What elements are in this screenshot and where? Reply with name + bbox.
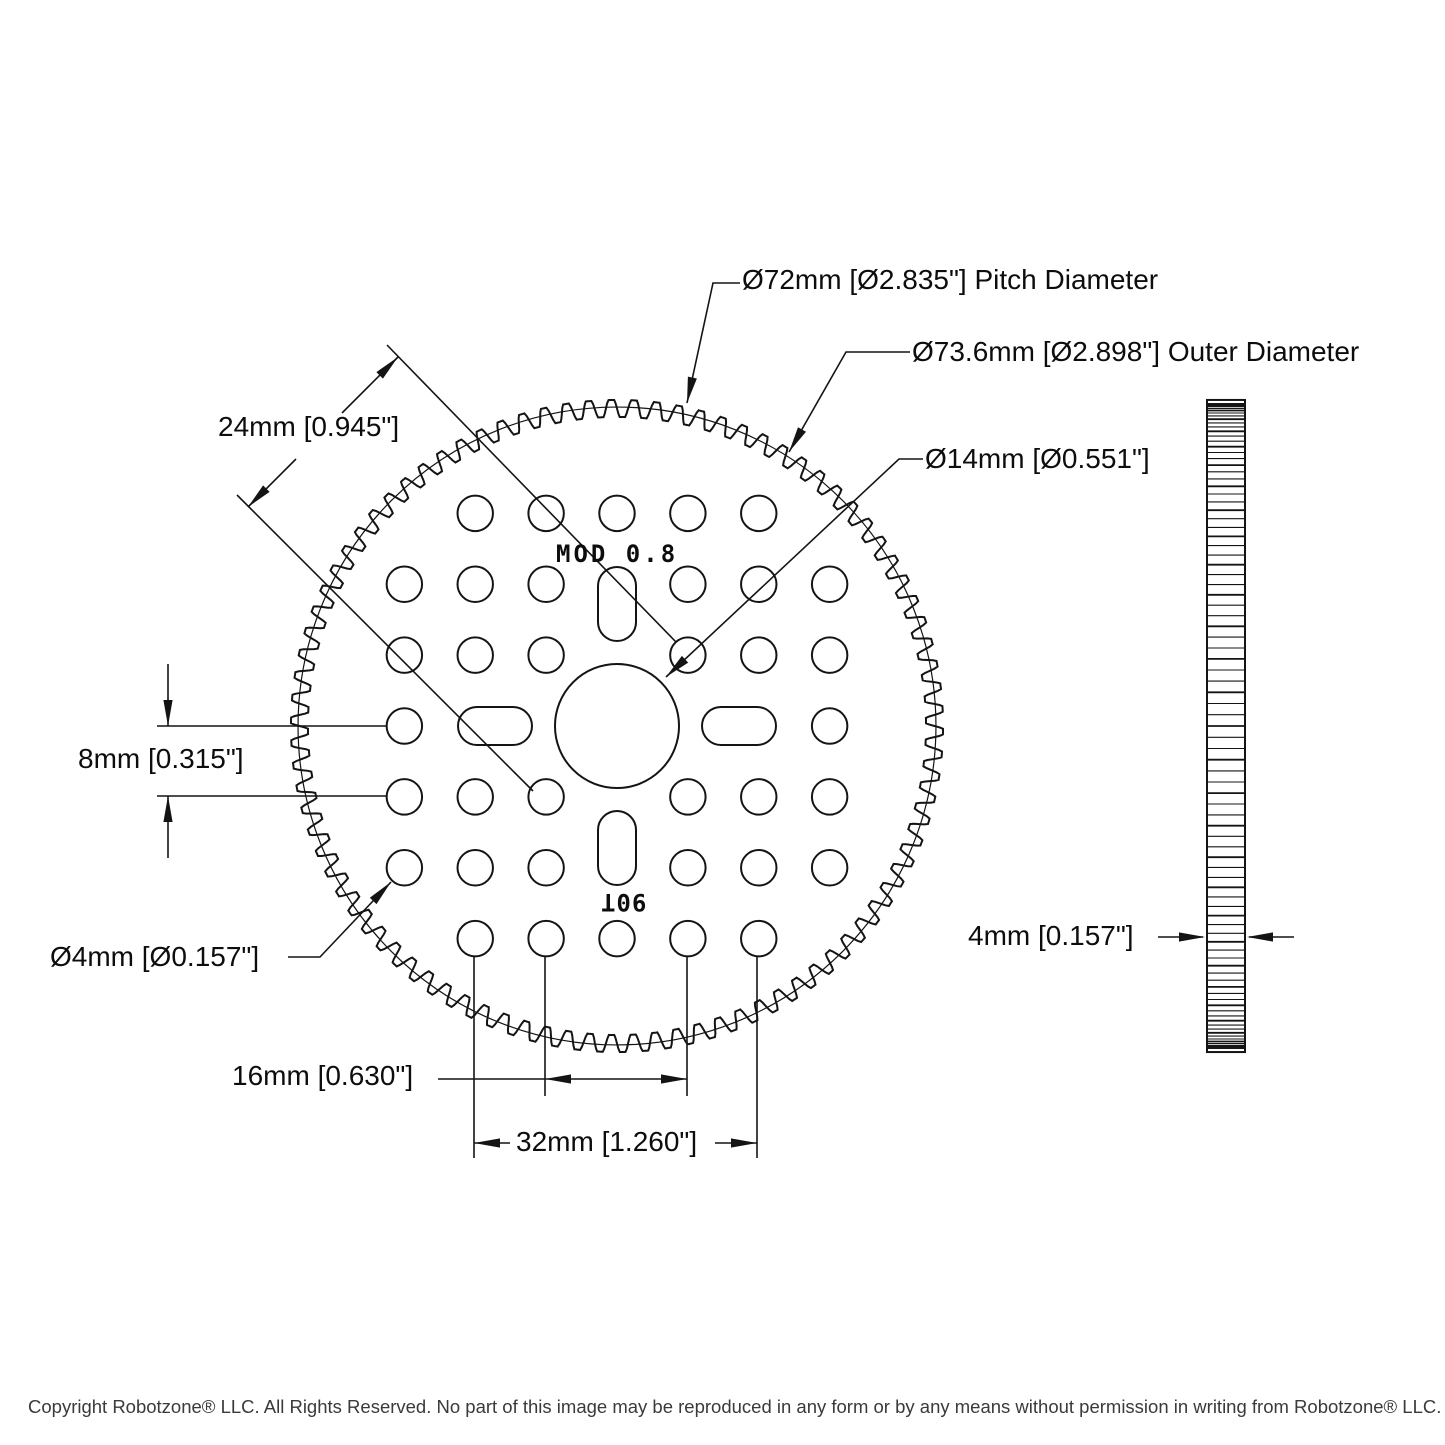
gear-front-view — [291, 400, 943, 1052]
diagonal-spacing-label: 24mm [0.945"] — [218, 412, 399, 442]
thickness-label: 4mm [0.157"] — [968, 921, 1134, 951]
copyright-text: Copyright Robotzone® LLC. All Rights Res… — [28, 1396, 1441, 1418]
module-marking: MOD 0.8 — [556, 540, 678, 568]
gear-technical-drawing: Ø72mm [Ø2.835"] Pitch Diameter Ø73.6mm [… — [0, 0, 1445, 1445]
hole-span-16-label: 16mm [0.630"] — [232, 1061, 413, 1091]
bore-diameter-label: Ø14mm [Ø0.551"] — [925, 444, 1150, 474]
hole-span-32-label: 32mm [1.260"] — [516, 1127, 697, 1157]
gear-side-view — [1207, 400, 1245, 1052]
pitch-diameter-label: Ø72mm [Ø2.835"] Pitch Diameter — [742, 265, 1158, 295]
hole-diameter-label: Ø4mm [Ø0.157"] — [50, 942, 259, 972]
outer-diameter-label: Ø73.6mm [Ø2.898"] Outer Diameter — [912, 337, 1359, 367]
row-spacing-label: 8mm [0.315"] — [78, 744, 244, 774]
drawing-canvas — [0, 0, 1445, 1445]
tooth-count-marking: 90T — [600, 888, 646, 916]
